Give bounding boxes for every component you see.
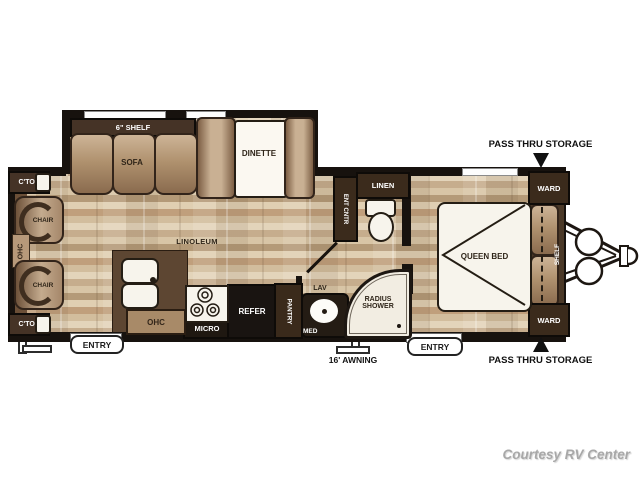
ohc-left-label: OHC — [18, 243, 25, 259]
linen-cabinet: LINEN — [356, 172, 410, 199]
pass-thru-top-arrow — [533, 153, 549, 168]
pass-thru-bottom-arrow — [533, 337, 549, 352]
wardrobe-bottom-label: WARD — [538, 316, 561, 325]
entertainment-center: ENT CNTR — [333, 176, 358, 242]
ohc-kitchen: OHC — [126, 309, 186, 335]
sink-faucet — [150, 277, 156, 283]
microwave-label: MICRO — [195, 324, 220, 333]
linen-label: LINEN — [372, 181, 395, 190]
wall-slideout-left — [62, 110, 70, 174]
lav-drain — [322, 309, 327, 314]
queen-bed-label: QUEEN BED — [439, 250, 530, 264]
pass-thru-bottom-label: PASS THRU STORAGE — [468, 355, 613, 367]
lav-label: LAV — [303, 284, 337, 294]
med-label: MED — [303, 328, 347, 335]
entertainment-center-label: ENT CNTR — [343, 194, 349, 224]
window-bedroom — [462, 168, 518, 176]
rv-floorplan: C'TOP CHAIR OHC CHAIR C'TOP 6" SHELF SOF… — [0, 0, 640, 480]
entry-left-label: ENTRY — [83, 340, 112, 350]
sink-bowl-bottom — [121, 283, 159, 309]
chair-bottom-label: CHAIR — [24, 262, 62, 308]
pass-thru-top-label: PASS THRU STORAGE — [468, 139, 613, 151]
door-swing-bottom-left — [35, 315, 51, 334]
entry-right-label: ENTRY — [421, 342, 450, 352]
pantry-label: PANTRY — [285, 298, 292, 324]
burner-icons — [185, 285, 225, 319]
wardrobe-top: WARD — [528, 171, 570, 205]
shelf-6ft-label: 6" SHELF — [116, 123, 150, 132]
refrigerator: REFER — [227, 284, 277, 339]
queen-bed: QUEEN BED — [437, 202, 532, 312]
sofa-label: SOFA — [70, 156, 194, 170]
awning-label: 16' AWNING — [314, 354, 392, 366]
stabilizer-bar-left — [22, 345, 52, 353]
cooktop — [185, 285, 229, 323]
tongue-hitch — [558, 196, 640, 306]
radius-shower-label: RADIUS SHOWER — [351, 288, 405, 318]
linoleum-label: LINOLEUM — [170, 236, 224, 248]
entry-door-right: ENTRY — [407, 337, 463, 356]
bed-dash-line — [541, 207, 543, 301]
dinette-label: DINETTE — [228, 147, 290, 161]
lavatory: MED — [301, 293, 349, 338]
watermark: Courtesy RV Center — [420, 447, 630, 462]
chair-bottom: CHAIR — [14, 260, 64, 310]
shower-drain — [397, 324, 401, 328]
wardrobe-top-label: WARD — [538, 184, 561, 193]
wardrobe-bottom: WARD — [528, 303, 570, 337]
bed-shelf-label: SHELF — [554, 243, 561, 264]
refrigerator-label: REFER — [238, 307, 265, 316]
toilet-bowl — [368, 212, 394, 242]
entry-door-left: ENTRY — [70, 335, 124, 354]
awning-bar-right — [336, 346, 370, 354]
bed-shelf: SHELF — [551, 214, 564, 294]
door-swing-top-left — [35, 173, 51, 192]
pantry: PANTRY — [274, 283, 303, 339]
ohc-kitchen-label: OHC — [147, 318, 165, 327]
